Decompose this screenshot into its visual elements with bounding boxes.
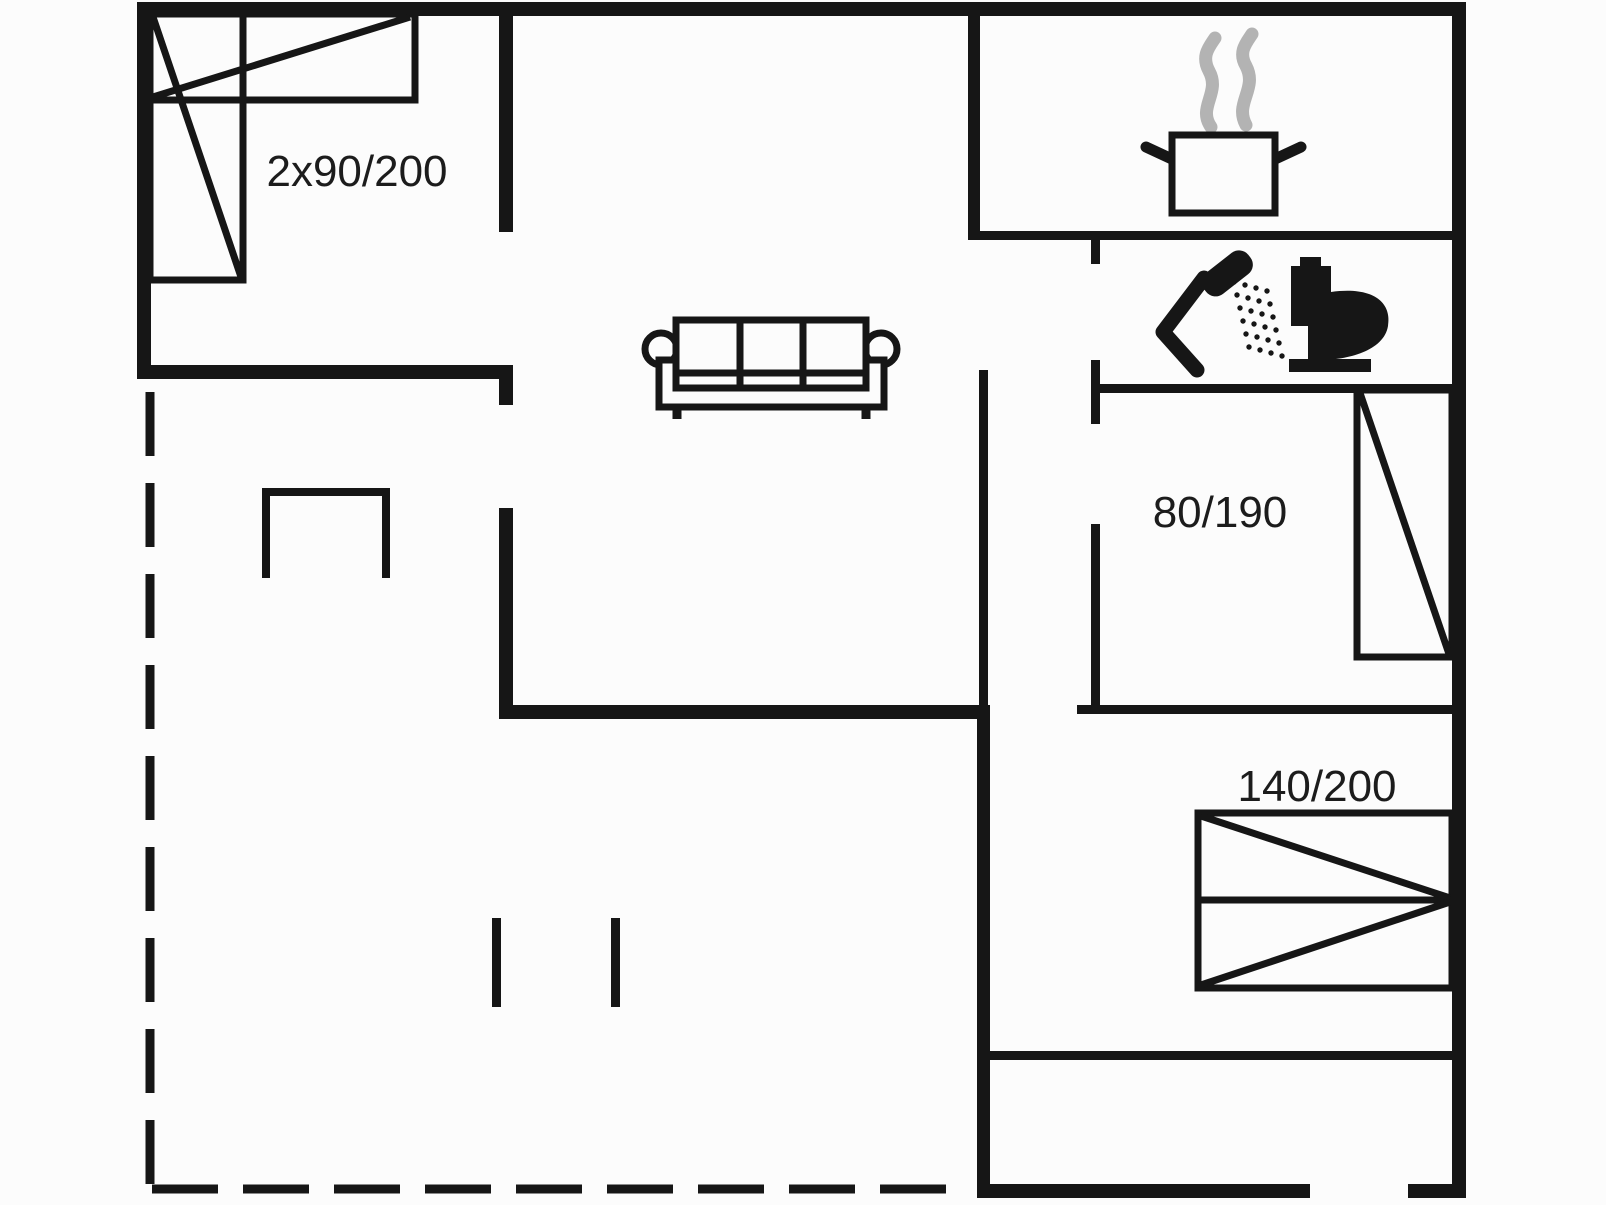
wall-hall-left — [499, 508, 513, 719]
wall-center-thin — [979, 370, 988, 712]
sofa-cushions — [676, 320, 866, 388]
label-bed-double: 2x90/200 — [266, 147, 447, 196]
toilet-base-icon — [1289, 359, 1371, 372]
bed-queen-diagonal-bottom — [1201, 902, 1450, 985]
wall-stub-hall-a — [492, 918, 501, 1007]
shower-spray-dots — [1231, 279, 1284, 358]
toilet-tank-icon — [1291, 266, 1331, 326]
wall-kitchen-bath-divider — [968, 231, 1452, 240]
wall-bedroom1-right — [499, 2, 513, 232]
bed-double-diagonal-h — [153, 17, 410, 97]
wall-center-lower — [977, 712, 990, 1198]
wall-outer-bottom-west — [977, 1184, 1310, 1198]
wall-bedroom3-bottom — [990, 1051, 1452, 1060]
bed-double-diagonal-v — [153, 17, 241, 277]
shower-head-icon — [1197, 246, 1258, 302]
steam-icon-right — [1243, 34, 1252, 125]
label-bed-single: 80/190 — [1153, 488, 1288, 537]
wall-stub-hall-b — [611, 918, 620, 1007]
bed-queen-diagonal-top — [1201, 816, 1450, 898]
wall-bedroom2-bottom — [1077, 705, 1452, 714]
steam-icon-left — [1206, 38, 1215, 127]
label-bed-queen: 140/200 — [1237, 762, 1396, 811]
floorplan-drawing: 2x90/20080/190140/200 — [0, 0, 1606, 1205]
bed-single-diagonal — [1360, 393, 1449, 654]
floorplan-page: 2x90/20080/190140/200 — [0, 0, 1606, 1205]
wall-bedroom2-left — [1091, 524, 1100, 712]
stove-nook-outline — [266, 492, 386, 578]
shower-handle-icon — [1163, 278, 1204, 370]
wall-bedroom1-bottom-stub — [499, 365, 513, 405]
toilet-button-icon — [1300, 257, 1321, 266]
wall-living-bottom — [499, 705, 990, 719]
wall-bath-left-stub — [1091, 240, 1100, 264]
wall-kitchen-left — [968, 10, 980, 240]
wall-bedroom1-bottom — [137, 365, 513, 379]
wall-outer-bottom-east — [1408, 1184, 1466, 1198]
cooking-pot-icon — [1172, 135, 1275, 213]
